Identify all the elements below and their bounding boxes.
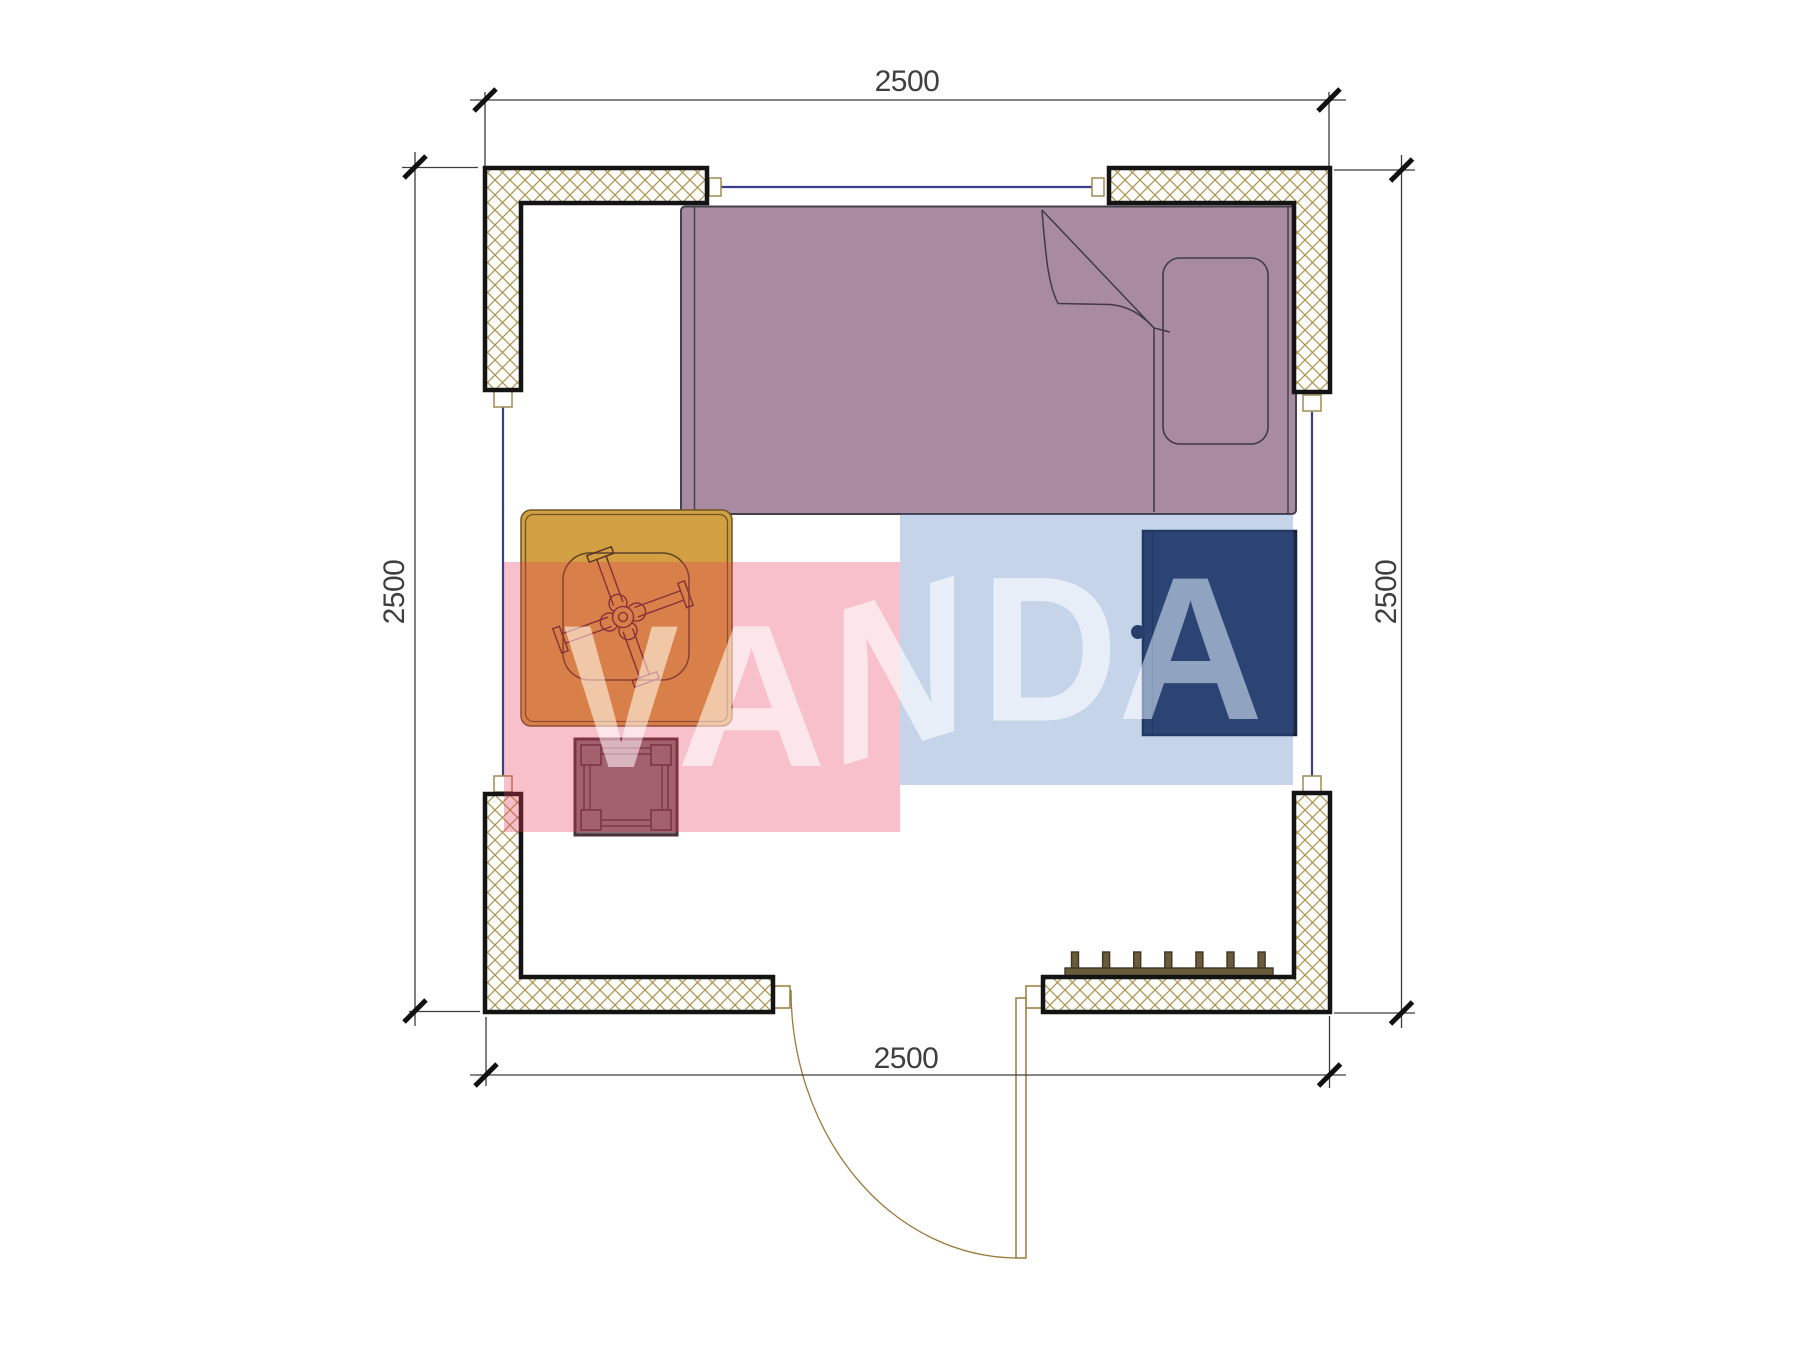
svg-text:V: V [563,584,679,811]
svg-text:D: D [981,534,1119,765]
svg-text:2500: 2500 [875,65,940,98]
svg-text:N: N [831,522,966,817]
svg-text:2500: 2500 [378,560,411,625]
svg-text:A: A [1118,535,1264,763]
svg-text:2500: 2500 [1370,560,1403,625]
svg-text:A: A [677,583,827,810]
svg-text:2500: 2500 [874,1042,939,1075]
